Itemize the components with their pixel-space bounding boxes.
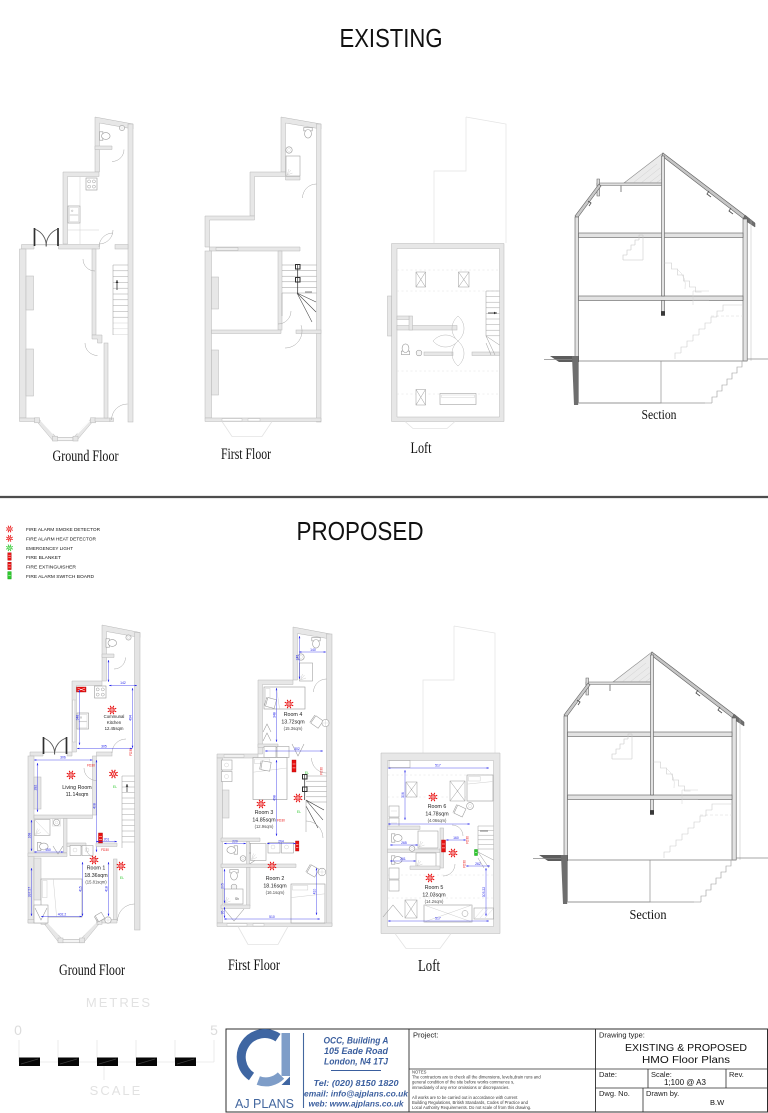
svg-text:Room 4: Room 4: [284, 712, 303, 718]
svg-text:AJ PLANS: AJ PLANS: [235, 1096, 294, 1111]
svg-text:415: 415: [79, 886, 83, 892]
svg-text:FD30: FD30: [87, 764, 95, 768]
svg-text:OCC, Building A: OCC, Building A: [324, 1036, 389, 1046]
svg-text:5: 5: [210, 1022, 218, 1038]
svg-text:(4.06sqm): (4.06sqm): [428, 818, 447, 823]
svg-text:142: 142: [120, 681, 126, 685]
svg-text:(16.1sqm): (16.1sqm): [266, 890, 285, 895]
svg-text:245: 245: [296, 655, 300, 661]
svg-text:web: www.ajplans.co.uk: web: www.ajplans.co.uk: [309, 1099, 405, 1109]
svg-text:306: 306: [60, 756, 66, 760]
svg-text:12.03sqm: 12.03sqm: [422, 893, 446, 899]
svg-text:Room 1: Room 1: [87, 866, 106, 872]
svg-text:EXISTING & PROPOSED: EXISTING & PROPOSED: [625, 1042, 747, 1054]
svg-text:email: info@ajplans.co.uk: email: info@ajplans.co.uk: [304, 1089, 409, 1099]
svg-text:262: 262: [475, 862, 481, 866]
svg-text:Communal: Communal: [104, 714, 125, 719]
svg-text:168: 168: [28, 833, 32, 839]
svg-text:FIRE BLANKET: FIRE BLANKET: [26, 555, 62, 560]
svg-text:517: 517: [435, 917, 441, 921]
svg-text:Ground Floor: Ground Floor: [53, 448, 120, 465]
svg-text:FIRE ALARM HEAT DETECTOR: FIRE ALARM HEAT DETECTOR: [26, 536, 96, 541]
svg-text:Kitchen: Kitchen: [107, 720, 122, 725]
svg-text:348: 348: [273, 712, 277, 718]
svg-text:Loft: Loft: [411, 440, 433, 457]
svg-text:18.36sqm: 18.36sqm: [84, 873, 108, 879]
svg-text:348: 348: [76, 715, 80, 721]
svg-text:EXISTING: EXISTING: [340, 23, 443, 53]
svg-text:494: 494: [129, 715, 133, 721]
svg-text:302: 302: [294, 747, 300, 751]
svg-text:FIRE ALARM SMOKE DETECTOR: FIRE ALARM SMOKE DETECTOR: [26, 527, 100, 532]
svg-text:11.14sqm: 11.14sqm: [66, 792, 89, 798]
svg-text:14.78sqm: 14.78sqm: [425, 812, 449, 818]
svg-text:Ground Floor: Ground Floor: [59, 962, 126, 979]
svg-text:265: 265: [401, 841, 407, 845]
svg-text:13.72sqm: 13.72sqm: [281, 720, 305, 726]
svg-text:EL: EL: [113, 785, 117, 789]
svg-text:264: 264: [278, 839, 284, 843]
svg-text:METRES: METRES: [86, 995, 152, 1010]
svg-text:517: 517: [435, 764, 441, 768]
svg-text:Loft: Loft: [418, 956, 440, 975]
svg-text:Date:: Date:: [599, 1070, 617, 1079]
svg-text:Local Authority Requirements.: Local Authority Requirements. Do not sca…: [412, 1105, 531, 1110]
svg-text:FD30: FD30: [320, 767, 324, 775]
svg-text:306: 306: [401, 792, 405, 798]
svg-text:(14.2sqm): (14.2sqm): [425, 899, 444, 904]
svg-text:418: 418: [105, 886, 109, 892]
svg-text:18.16sqm: 18.16sqm: [263, 884, 287, 890]
svg-text:160: 160: [453, 836, 459, 840]
svg-text:0: 0: [14, 1022, 22, 1038]
svg-text:95: 95: [221, 911, 225, 915]
svg-text:FIRE EXTINGUISHER: FIRE EXTINGUISHER: [26, 565, 76, 570]
svg-text:Room 3: Room 3: [255, 810, 274, 816]
svg-text:B.W: B.W: [710, 1098, 725, 1107]
svg-text:SCALE: SCALE: [90, 1083, 143, 1098]
svg-text:408: 408: [93, 803, 97, 809]
svg-text:FD30: FD30: [463, 860, 467, 868]
svg-text:First Floor: First Floor: [221, 446, 272, 463]
svg-text:EMERGENCEY LIGHT: EMERGENCEY LIGHT: [26, 546, 74, 551]
svg-text:Room 6: Room 6: [428, 804, 447, 810]
svg-text:1;100 @ A3: 1;100 @ A3: [664, 1078, 706, 1087]
svg-text:510: 510: [269, 915, 275, 919]
svg-text:London, N4 1TJ: London, N4 1TJ: [324, 1057, 389, 1067]
svg-text:Tel: (020) 8150 1820: Tel: (020) 8150 1820: [314, 1078, 399, 1088]
svg-text:Living Room: Living Room: [62, 785, 92, 791]
svg-text:(15.81sqm): (15.81sqm): [85, 880, 107, 885]
svg-text:12.45sqm: 12.45sqm: [105, 726, 124, 731]
svg-text:Project:: Project:: [413, 1031, 438, 1040]
svg-text:305: 305: [101, 744, 107, 748]
svg-text:261: 261: [400, 857, 406, 861]
svg-text:EL: EL: [120, 876, 124, 880]
svg-text:305.22: 305.22: [482, 887, 486, 897]
svg-text:FIRE ALARM SWITCH BOARD: FIRE ALARM SWITCH BOARD: [26, 574, 94, 579]
svg-text:Rev.: Rev.: [729, 1070, 744, 1079]
svg-text:205: 205: [221, 883, 225, 889]
svg-text:Drawn by.: Drawn by.: [646, 1089, 679, 1098]
svg-text:337.57: 337.57: [28, 887, 32, 897]
svg-text:First Floor: First Floor: [228, 957, 281, 974]
svg-text:Section: Section: [630, 907, 667, 922]
svg-text:FD30: FD30: [466, 836, 470, 844]
svg-text:immediately of any error omiss: immediately of any error omissions or di…: [412, 1085, 510, 1090]
svg-text:EL: EL: [297, 810, 301, 814]
svg-text:(12.9sqm): (12.9sqm): [255, 824, 274, 829]
svg-text:Room 2: Room 2: [266, 876, 285, 882]
svg-text:14.85sqm: 14.85sqm: [252, 818, 276, 824]
svg-text:HMO Floor Plans: HMO Floor Plans: [642, 1054, 730, 1066]
svg-text:Room 5: Room 5: [425, 885, 444, 891]
svg-text:140: 140: [310, 648, 316, 652]
svg-text:220: 220: [232, 839, 238, 843]
svg-text:282: 282: [34, 785, 38, 791]
svg-text:410: 410: [313, 889, 317, 895]
svg-text:PROPOSED: PROPOSED: [297, 516, 424, 546]
svg-text:FD30: FD30: [277, 819, 285, 823]
svg-text:201: 201: [104, 837, 110, 841]
svg-text:150: 150: [45, 848, 51, 852]
svg-text:498: 498: [273, 795, 277, 801]
svg-text:402.2: 402.2: [58, 912, 67, 916]
svg-text:Sh: Sh: [235, 897, 239, 901]
svg-text:FD30: FD30: [101, 848, 109, 852]
svg-text:Drawing type:: Drawing type:: [599, 1031, 645, 1040]
svg-text:(15.3sqm): (15.3sqm): [284, 726, 303, 731]
svg-text:Dwg. No.: Dwg. No.: [599, 1089, 630, 1098]
svg-text:105 Eade Road: 105 Eade Road: [324, 1046, 388, 1056]
svg-text:Section: Section: [642, 407, 677, 422]
